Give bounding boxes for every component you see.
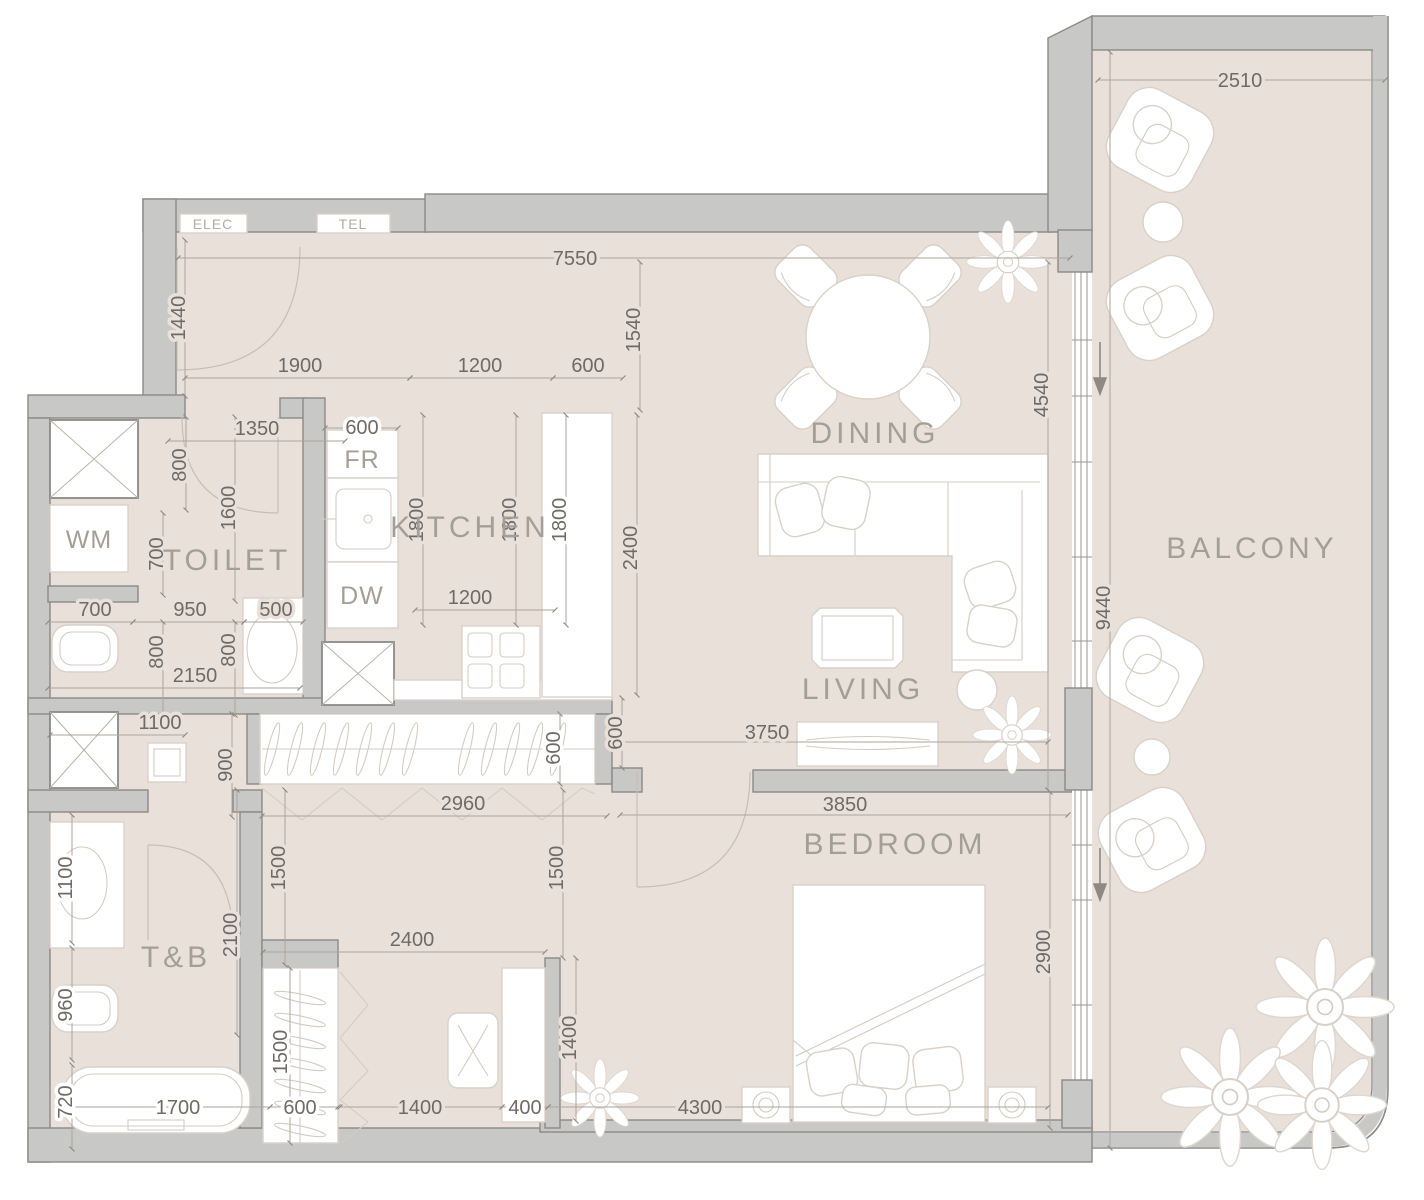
dim-label: 2960 [441, 793, 486, 815]
dim-label: 500 [259, 599, 292, 621]
dim-label: 700 [78, 599, 111, 621]
balcony-floor [1092, 50, 1380, 1140]
elec-label: ELEC [193, 216, 234, 232]
plant-dining [967, 221, 1050, 304]
dim-label: 2400 [390, 929, 435, 951]
dim-label: 2510 [1218, 70, 1263, 92]
room-label-tb: T&B [141, 941, 211, 974]
dim-label: 400 [508, 1097, 541, 1119]
room-label-bedroom: BEDROOM [803, 828, 986, 861]
dim-label: 4300 [678, 1097, 723, 1119]
bed-pillow-4 [840, 1083, 887, 1117]
island-counter [542, 413, 612, 697]
dim-label: 1900 [278, 355, 323, 377]
dim-label: 1200 [458, 355, 503, 377]
wall-tower [1048, 16, 1092, 232]
wall-balcony-top [1092, 16, 1385, 50]
side-pouf [957, 670, 997, 710]
dim-label: 1100 [55, 856, 77, 899]
dim-label: 1800 [549, 498, 571, 543]
dim-label: 600 [571, 355, 604, 377]
floor-plan-page: ELEC TEL [0, 0, 1424, 1200]
dim-label: 1500 [268, 846, 290, 891]
nightstand-left [742, 1087, 790, 1123]
dim-label: 960 [55, 988, 77, 1021]
fixture-label-dw: DW [340, 582, 384, 610]
dim-label: 2150 [173, 665, 218, 687]
room-label-balcony: BALCONY [1166, 532, 1337, 565]
bed-pillow-2 [858, 1042, 910, 1091]
dining-table [806, 275, 930, 399]
dim-label: 1700 [156, 1097, 201, 1119]
dim-label: 800 [169, 448, 191, 481]
water-heater [148, 743, 186, 782]
dim-label: 1440 [168, 296, 190, 341]
balcony-table-1 [1143, 202, 1183, 242]
dim-label: 3850 [823, 794, 868, 816]
dim-label: 1500 [546, 846, 568, 891]
plant-dressing [561, 1059, 639, 1137]
dim-label: 600 [605, 716, 627, 749]
wall-tb-top-left [28, 790, 148, 812]
wall-toilet-top-right [280, 398, 305, 418]
shaft-tb [50, 712, 118, 788]
window-pier-top [1058, 230, 1092, 272]
room-label-dining: DINING [811, 417, 940, 450]
dim-label: 2100 [220, 913, 242, 958]
tv-console [797, 722, 938, 766]
window-pier-mid [1065, 688, 1092, 790]
plant-balcony-3 [1258, 1041, 1387, 1170]
room-label-living: LIVING [802, 673, 924, 706]
fixture-label-wm: WM [66, 526, 112, 554]
shaft-entry [50, 420, 138, 498]
dim-label: 800 [146, 635, 168, 668]
dim-label: 1400 [398, 1097, 443, 1119]
dim-label: 1400 [559, 1016, 581, 1061]
wall-living-bedroom [753, 770, 1072, 792]
wall-left-step [28, 395, 185, 418]
dim-label: 1350 [235, 418, 280, 440]
window-pier-bottom [1062, 1080, 1092, 1128]
sofa-cushion-4 [965, 603, 1019, 649]
dim-label: 7550 [553, 248, 598, 270]
dim-label: 800 [218, 633, 240, 666]
dim-label: 720 [55, 1085, 77, 1118]
balcony-table-2 [1134, 739, 1170, 775]
dim-label: 1200 [448, 587, 493, 609]
bed-pillow-5 [905, 1084, 951, 1116]
room-label-toilet: TOILET [163, 544, 291, 577]
dim-label: 900 [215, 748, 237, 781]
fixture-label-fr: FR [344, 446, 379, 474]
dim-label: 2400 [620, 526, 642, 571]
dim-label: 2900 [1033, 930, 1055, 975]
floor-plan: ELEC TEL [0, 0, 1424, 1200]
wall-dressing-right [545, 958, 560, 1128]
tel-label: TEL [339, 216, 368, 232]
dim-label: 600 [345, 417, 378, 439]
dim-label: 9440 [1093, 586, 1115, 631]
dim-label: 1500 [270, 1030, 292, 1075]
dim-label: 3750 [745, 722, 790, 744]
room-label-kitchen: KITCHEN [390, 511, 550, 544]
coffee-table [812, 608, 903, 668]
shaft-kitchen [322, 642, 394, 705]
dim-label: 1600 [218, 486, 240, 531]
dim-label: 4540 [1031, 373, 1053, 418]
folding-table [448, 1013, 498, 1088]
wall-top-notch [425, 194, 1050, 232]
dim-label: 950 [173, 599, 206, 621]
dim-label: 600 [283, 1097, 316, 1119]
dim-label: 600 [543, 731, 565, 764]
plant-living [973, 696, 1051, 774]
dim-label: 1540 [623, 308, 645, 353]
nightstand-right [988, 1087, 1036, 1123]
dim-label: 1100 [138, 712, 181, 734]
wall-dressing-top [262, 940, 338, 968]
